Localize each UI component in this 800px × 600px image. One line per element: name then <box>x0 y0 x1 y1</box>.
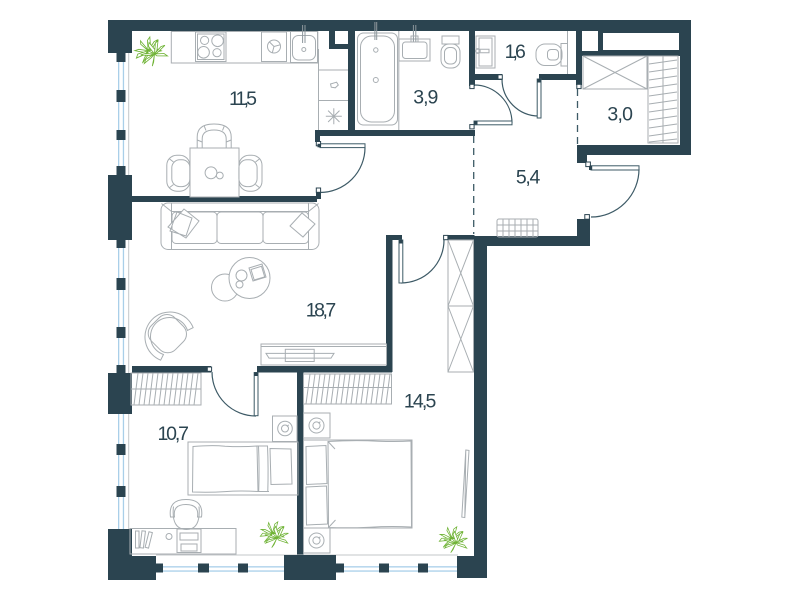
svg-text:18,7: 18,7 <box>306 299 336 321</box>
svg-text:3,9: 3,9 <box>413 87 438 109</box>
svg-text:14,5: 14,5 <box>404 391 437 413</box>
svg-text:11,5: 11,5 <box>229 88 257 110</box>
svg-text:3,0: 3,0 <box>607 104 633 126</box>
svg-text:10,7: 10,7 <box>157 423 189 445</box>
svg-text:5,4: 5,4 <box>516 166 541 188</box>
svg-text:1,6: 1,6 <box>505 41 526 63</box>
